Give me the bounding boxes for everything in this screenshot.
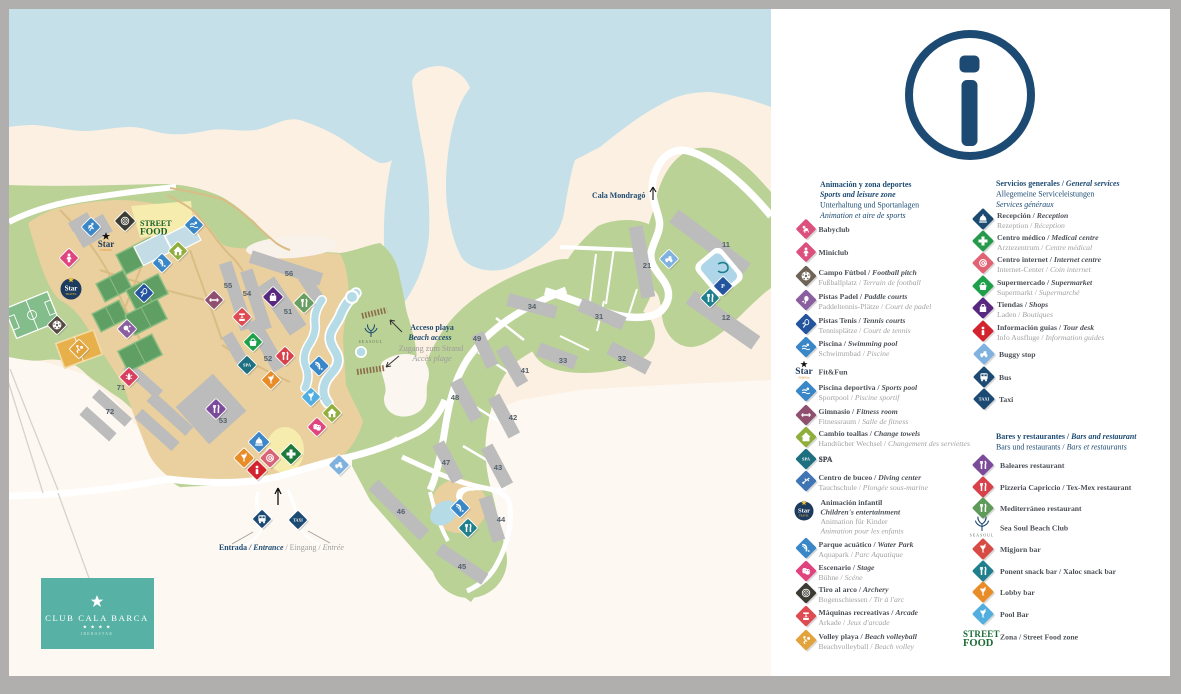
svg-text:33: 33 bbox=[559, 356, 567, 365]
svg-text:Miniclub: Miniclub bbox=[819, 248, 849, 257]
svg-text:Bus: Bus bbox=[999, 373, 1011, 382]
svg-text:SPA: SPA bbox=[819, 455, 833, 464]
svg-text:Zugang zum Strand: Zugang zum Strand bbox=[399, 344, 464, 353]
svg-text:Migjorn bar: Migjorn bar bbox=[1000, 545, 1041, 554]
svg-text:Ponent snack bar / Xaloc snack: Ponent snack bar / Xaloc snack bar bbox=[1000, 567, 1117, 576]
svg-text:Fußballplatz / Terrain de foot: Fußballplatz / Terrain de football bbox=[819, 278, 921, 287]
svg-text:Beach access: Beach access bbox=[407, 333, 451, 342]
svg-text:Supermercado / Supermarket: Supermercado / Supermarket bbox=[997, 278, 1093, 287]
svg-text:71: 71 bbox=[117, 383, 126, 392]
svg-text:46: 46 bbox=[397, 507, 405, 516]
svg-text:Tiendas / Shops: Tiendas / Shops bbox=[997, 300, 1048, 309]
svg-text:TRAVEL: TRAVEL bbox=[799, 515, 809, 518]
svg-text:Acceso playa: Acceso playa bbox=[410, 323, 454, 332]
svg-text:Bogenschiessen / Tir à l'arc: Bogenschiessen / Tir à l'arc bbox=[819, 595, 905, 604]
svg-text:Fit&Fun: Fit&Fun bbox=[799, 376, 810, 380]
svg-text:49: 49 bbox=[473, 334, 481, 343]
svg-text:Centro médico / Medical centre: Centro médico / Medical centre bbox=[997, 233, 1099, 242]
svg-text:Babyclub: Babyclub bbox=[819, 225, 850, 234]
svg-text:TRAVEL: TRAVEL bbox=[65, 292, 77, 296]
svg-text:Tauchschule / Plongée sous-ma: Tauchschule / Plongée sous-marine bbox=[819, 483, 929, 492]
svg-text:56: 56 bbox=[285, 269, 293, 278]
svg-text:Sports and leisure zone: Sports and leisure zone bbox=[820, 190, 896, 199]
svg-text:Centro internet / Internet ce: Centro internet / Internet centre bbox=[997, 255, 1102, 264]
svg-text:32: 32 bbox=[618, 354, 626, 363]
svg-text:Volley playa / Beach volleybal: Volley playa / Beach volleyball bbox=[819, 632, 918, 641]
svg-text:Piscina deportiva / Sports poo: Piscina deportiva / Sports pool bbox=[819, 383, 919, 392]
svg-text:Children's entertainment: Children's entertainment bbox=[821, 508, 902, 517]
svg-text:47: 47 bbox=[442, 458, 450, 467]
svg-text:Bares y restaurantes / Bars a: Bares y restaurantes / Bars and restaura… bbox=[996, 432, 1137, 441]
svg-text:SPA: SPA bbox=[243, 363, 252, 368]
svg-text:Arztezentrum / Centre médical: Arztezentrum / Centre médical bbox=[997, 243, 1092, 252]
svg-text:Pistas Tenis / Tennis courts: Pistas Tenis / Tennis courts bbox=[819, 316, 906, 325]
svg-text:12: 12 bbox=[722, 313, 730, 322]
svg-text:21: 21 bbox=[643, 261, 652, 270]
svg-text:Arkade / Jeux d'arcade: Arkade / Jeux d'arcade bbox=[819, 618, 891, 627]
svg-text:TAXI: TAXI bbox=[293, 517, 303, 522]
svg-text:Máquinas recreativas / Arcade: Máquinas recreativas / Arcade bbox=[819, 608, 919, 617]
svg-text:45: 45 bbox=[458, 562, 467, 571]
svg-text:Beachvolleyball / Beach volle: Beachvolleyball / Beach volley bbox=[819, 642, 915, 651]
svg-text:Allegemeine Serviceleistungen: Allegemeine Serviceleistungen bbox=[996, 190, 1094, 199]
svg-text:Paddeltennis-Plätze / Court de: Paddeltennis-Plätze / Court de padel bbox=[819, 302, 932, 311]
svg-text:Supermarkt / Supermarché: Supermarkt / Supermarché bbox=[997, 288, 1080, 297]
svg-text:Info Ausfluge / Information gu: Info Ausfluge / Information guides bbox=[997, 333, 1104, 342]
svg-text:53: 53 bbox=[219, 416, 227, 425]
svg-text:52: 52 bbox=[264, 354, 272, 363]
svg-text:Taxi: Taxi bbox=[999, 395, 1014, 404]
svg-text:IBEROSTAR: IBEROSTAR bbox=[81, 632, 113, 636]
svg-text:Unterhaltung und Sportanlagen: Unterhaltung und Sportanlagen bbox=[820, 201, 919, 210]
svg-text:41: 41 bbox=[521, 366, 530, 375]
svg-text:Mediterráneo restaurant: Mediterráneo restaurant bbox=[1000, 504, 1082, 513]
svg-text:Bars und restaurants / Bars e: Bars und restaurants / Bars et restauran… bbox=[996, 443, 1127, 452]
svg-text:Sea Soul Beach Club: Sea Soul Beach Club bbox=[1000, 524, 1068, 533]
svg-text:34: 34 bbox=[528, 302, 537, 311]
svg-text:Sportpool / Piscine sportif: Sportpool / Piscine sportif bbox=[819, 393, 902, 402]
svg-text:SPA: SPA bbox=[802, 457, 811, 462]
svg-text:Parque acuático / Water Park: Parque acuático / Water Park bbox=[819, 540, 914, 549]
svg-text:Schwimmbad / Piscine: Schwimmbad / Piscine bbox=[819, 349, 890, 358]
svg-text:Bühne / Scéne: Bühne / Scéne bbox=[819, 573, 864, 582]
svg-text:Animation für Kinder: Animation für Kinder bbox=[821, 517, 888, 526]
svg-text:Pistas Padel / Paddle courts: Pistas Padel / Paddle courts bbox=[819, 292, 908, 301]
svg-text:Recepción / Reception: Recepción / Reception bbox=[997, 211, 1068, 220]
svg-text:Campo Fútbol / Football pitch: Campo Fútbol / Football pitch bbox=[819, 268, 917, 277]
svg-text:Servicios generales / General: Servicios generales / General services bbox=[996, 179, 1120, 188]
svg-text:Animation pour les enfants: Animation pour les enfants bbox=[820, 527, 904, 536]
svg-text:Baleares restaurant: Baleares restaurant bbox=[1000, 461, 1065, 470]
svg-text:Services généraux: Services généraux bbox=[996, 200, 1054, 209]
svg-text:Fitnessraum / Salle de fitness: Fitnessraum / Salle de fitness bbox=[819, 417, 909, 426]
svg-text:Star: Star bbox=[798, 508, 810, 515]
svg-text:Pizzeria Capriccio / Tex-Mex r: Pizzeria Capriccio / Tex-Mex restaurant bbox=[1000, 483, 1132, 492]
svg-text:31: 31 bbox=[595, 312, 604, 321]
svg-text:Animación y zona deportes: Animación y zona deportes bbox=[820, 180, 911, 189]
svg-text:Internet-Center / Coin interne: Internet-Center / Coin internet bbox=[997, 265, 1092, 274]
svg-text:Información guías / Tour desk: Información guías / Tour desk bbox=[997, 323, 1094, 332]
svg-text:FOOD: FOOD bbox=[140, 228, 168, 238]
svg-text:55: 55 bbox=[224, 281, 233, 290]
svg-text:51: 51 bbox=[284, 307, 293, 316]
svg-text:Cambio toallas / Change towels: Cambio toallas / Change towels bbox=[819, 429, 921, 438]
svg-text:Pool Bar: Pool Bar bbox=[1000, 610, 1029, 619]
svg-text:Accès plage: Accès plage bbox=[411, 354, 452, 363]
svg-text:SEASOUL: SEASOUL bbox=[359, 340, 384, 344]
svg-text:Tiro al arco / Archery: Tiro al arco / Archery bbox=[819, 585, 890, 594]
svg-text:Fit&Fun: Fit&Fun bbox=[100, 248, 112, 252]
svg-text:Entrada / Entrance / Eingang /: Entrada / Entrance / Eingang / Entrée bbox=[219, 543, 344, 552]
svg-text:FOOD: FOOD bbox=[963, 638, 994, 649]
svg-text:42: 42 bbox=[509, 413, 517, 422]
svg-text:Aquapark / Parc Aquatique: Aquapark / Parc Aquatique bbox=[819, 550, 904, 559]
svg-text:TAXI: TAXI bbox=[979, 397, 990, 402]
svg-text:Tennisplätze / Court de tennis: Tennisplätze / Court de tennis bbox=[819, 326, 911, 335]
svg-text:Animación infantil: Animación infantil bbox=[821, 498, 883, 507]
svg-text:54: 54 bbox=[243, 289, 252, 298]
svg-text:72: 72 bbox=[106, 407, 114, 416]
svg-text:Piscina / Swimming pool: Piscina / Swimming pool bbox=[819, 339, 899, 348]
svg-text:Handtücher Wechsel / Changeme: Handtücher Wechsel / Changement des serv… bbox=[819, 439, 970, 448]
svg-text:11: 11 bbox=[722, 240, 731, 249]
svg-text:43: 43 bbox=[494, 463, 502, 472]
svg-text:Fit&Fun: Fit&Fun bbox=[819, 368, 849, 377]
svg-text:Cala Mondragó: Cala Mondragó bbox=[592, 191, 645, 200]
svg-text:Laden / Boutiques: Laden / Boutiques bbox=[997, 310, 1053, 319]
svg-text:Zona / Street Food zone: Zona / Street Food zone bbox=[1000, 633, 1079, 642]
svg-text:48: 48 bbox=[451, 393, 459, 402]
svg-text:Rezeption / Réception: Rezeption / Réception bbox=[997, 221, 1065, 230]
svg-text:P: P bbox=[721, 284, 725, 290]
svg-text:Escenario / Stage: Escenario / Stage bbox=[819, 563, 876, 572]
svg-text:★ ★ ★ ★: ★ ★ ★ ★ bbox=[83, 625, 112, 631]
svg-text:Animation et aire de sports: Animation et aire de sports bbox=[819, 211, 906, 220]
svg-text:CLUB CALA BARCA: CLUB CALA BARCA bbox=[45, 613, 149, 623]
svg-text:Lobby bar: Lobby bar bbox=[1000, 588, 1035, 597]
svg-text:Gimnasio / Fitness room: Gimnasio / Fitness room bbox=[819, 407, 898, 416]
svg-text:44: 44 bbox=[497, 515, 506, 524]
svg-text:Buggy stop: Buggy stop bbox=[999, 350, 1036, 359]
svg-text:SEASOUL: SEASOUL bbox=[970, 534, 995, 538]
svg-text:Centro de buceo / Diving cente: Centro de buceo / Diving center bbox=[819, 473, 923, 482]
